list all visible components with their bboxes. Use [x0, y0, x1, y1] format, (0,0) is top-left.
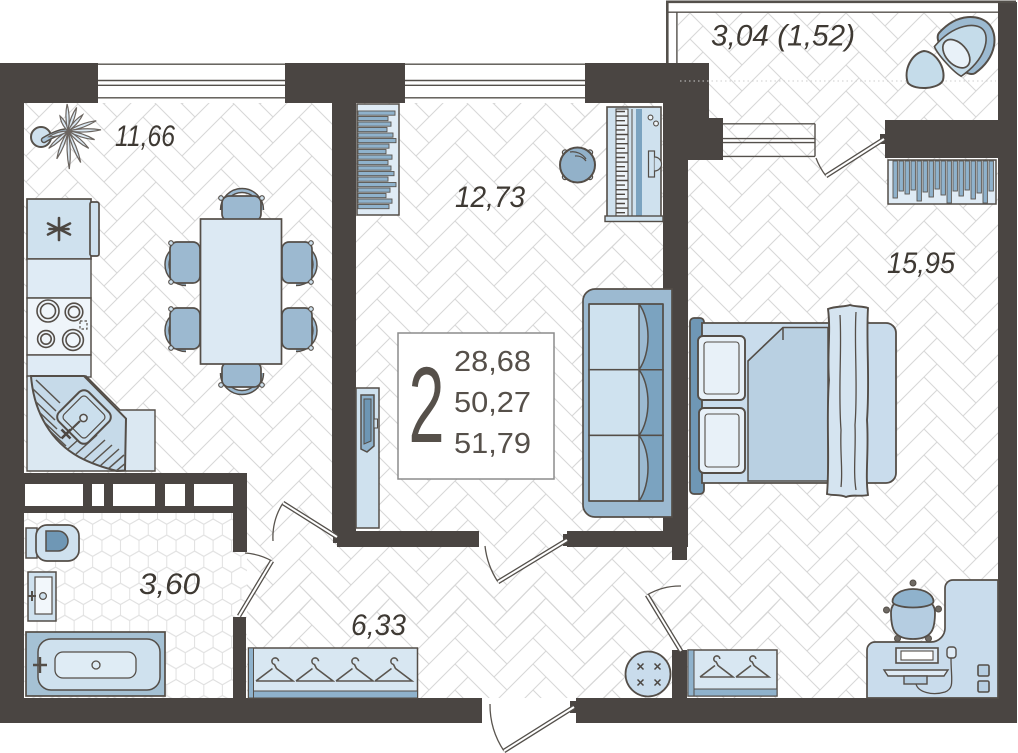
svg-text:12,73: 12,73: [455, 181, 525, 214]
svg-text:11,66: 11,66: [115, 120, 175, 153]
svg-text:3,04 (1,52): 3,04 (1,52): [711, 20, 855, 53]
svg-text:3,60: 3,60: [139, 568, 200, 601]
svg-text:6,33: 6,33: [351, 609, 406, 642]
svg-text:2: 2: [409, 344, 445, 465]
svg-text:50,27: 50,27: [454, 387, 531, 419]
svg-text:15,95: 15,95: [887, 247, 955, 280]
svg-text:28,68: 28,68: [454, 346, 531, 378]
svg-text:51,79: 51,79: [454, 428, 531, 460]
